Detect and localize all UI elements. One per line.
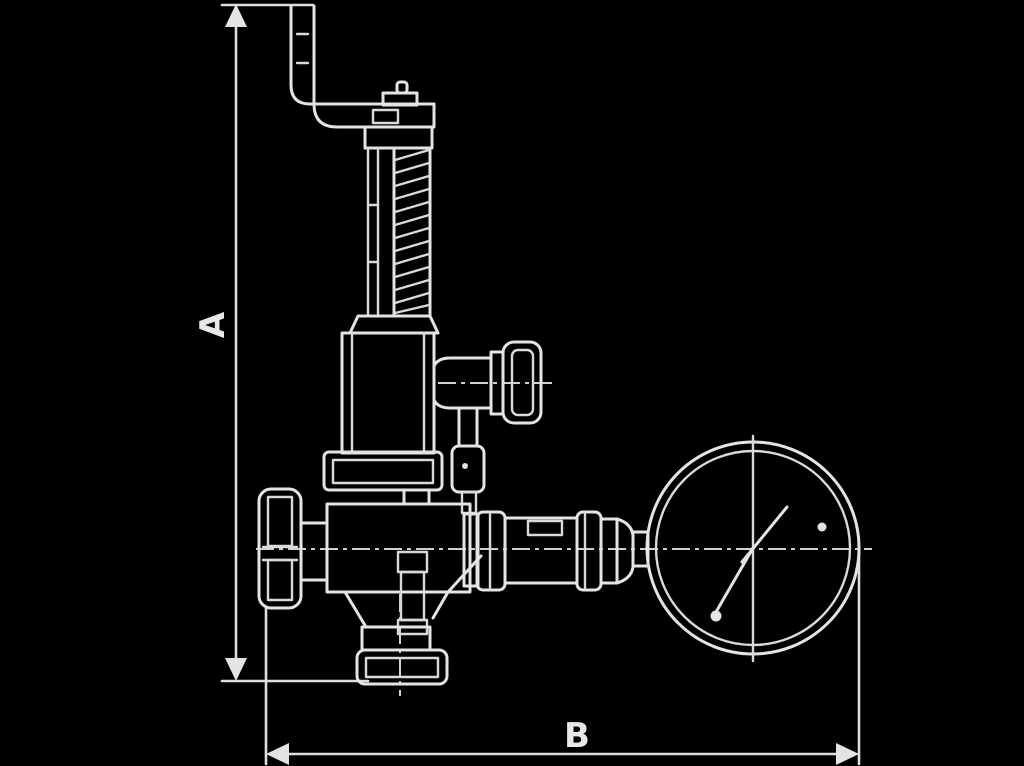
pipe-ring-2	[601, 519, 617, 583]
handwheel-rim-bottom	[268, 560, 292, 600]
cap-stub	[397, 82, 407, 93]
dim-b-arrowhead-right-icon	[836, 743, 859, 765]
gauge-needle	[742, 507, 787, 562]
body-taper-left	[345, 592, 366, 627]
centerlines	[256, 383, 872, 696]
drawing-canvas: A B	[0, 0, 1024, 766]
union-block-dot	[462, 463, 468, 469]
body-taper-right	[433, 592, 448, 618]
dim-a-arrowhead-down-icon	[225, 658, 247, 681]
outlet-passage-step2	[401, 572, 424, 620]
collar-inner	[333, 460, 433, 483]
pipe-barrel	[505, 518, 577, 583]
handwheel-rim-top	[268, 497, 292, 546]
bracket-end-window	[373, 110, 398, 123]
dim-a-arrowhead-up-icon	[225, 4, 247, 27]
lift-bracket	[291, 6, 434, 127]
spring-bonnet	[342, 333, 434, 453]
outlet-flange	[357, 627, 447, 684]
outlet-neck	[362, 627, 430, 650]
threaded-spindle	[368, 148, 430, 316]
dim-b-label: B	[564, 716, 590, 756]
flange-outer	[357, 650, 447, 684]
branch-connector	[459, 408, 477, 446]
bracket-inner-edge	[314, 6, 366, 127]
lock-nut	[350, 316, 438, 333]
thread-hatching	[395, 150, 429, 313]
pipe-union-nut	[577, 512, 601, 590]
pipe-barrel-recess	[528, 521, 562, 535]
pipe-bell-top	[617, 519, 633, 535]
gauge-pipe	[464, 512, 648, 590]
spring-housing	[342, 316, 438, 453]
flange-inner	[366, 658, 438, 677]
gauge-stop-pin	[818, 523, 827, 532]
outlet-passage-step1	[398, 552, 427, 572]
valve-body	[301, 504, 481, 634]
side-valve	[434, 342, 541, 513]
bracket-outer-edge	[291, 6, 434, 104]
valve-technical-drawing: A B	[0, 0, 1024, 766]
gauge-needle-counterweight	[711, 611, 722, 622]
dim-a-label: A	[193, 311, 233, 338]
cap-nut-lower	[365, 127, 432, 148]
branch-top-edge	[434, 358, 491, 366]
bonnet-collar	[324, 452, 442, 504]
branch-union-block	[452, 446, 484, 492]
collar-outer	[324, 452, 442, 490]
pipe-bell-bottom	[617, 567, 633, 583]
dimension-b: B	[266, 548, 859, 765]
dim-b-arrowhead-left-icon	[266, 743, 289, 765]
